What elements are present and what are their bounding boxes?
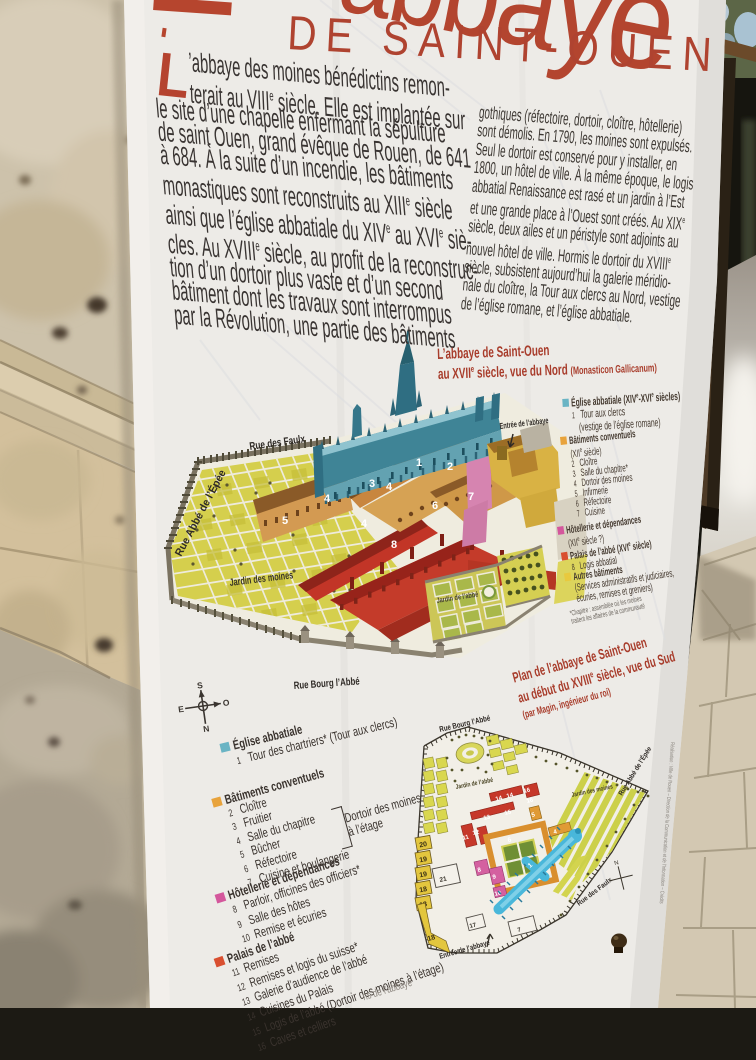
svg-text:7: 7: [468, 491, 474, 503]
svg-text:4: 4: [361, 518, 368, 530]
svg-text:3: 3: [369, 478, 375, 490]
svg-text:5: 5: [282, 515, 288, 527]
svg-text:1: 1: [416, 457, 422, 469]
svg-text:8: 8: [391, 539, 397, 551]
svg-text:19: 19: [419, 871, 428, 879]
svg-text:2: 2: [447, 461, 453, 473]
svg-text:19: 19: [419, 856, 428, 864]
svg-text:20: 20: [419, 841, 428, 849]
svg-text:4: 4: [386, 481, 393, 493]
svg-text:18: 18: [419, 886, 428, 894]
svg-text:6: 6: [432, 500, 438, 512]
svg-text:4: 4: [324, 493, 331, 505]
